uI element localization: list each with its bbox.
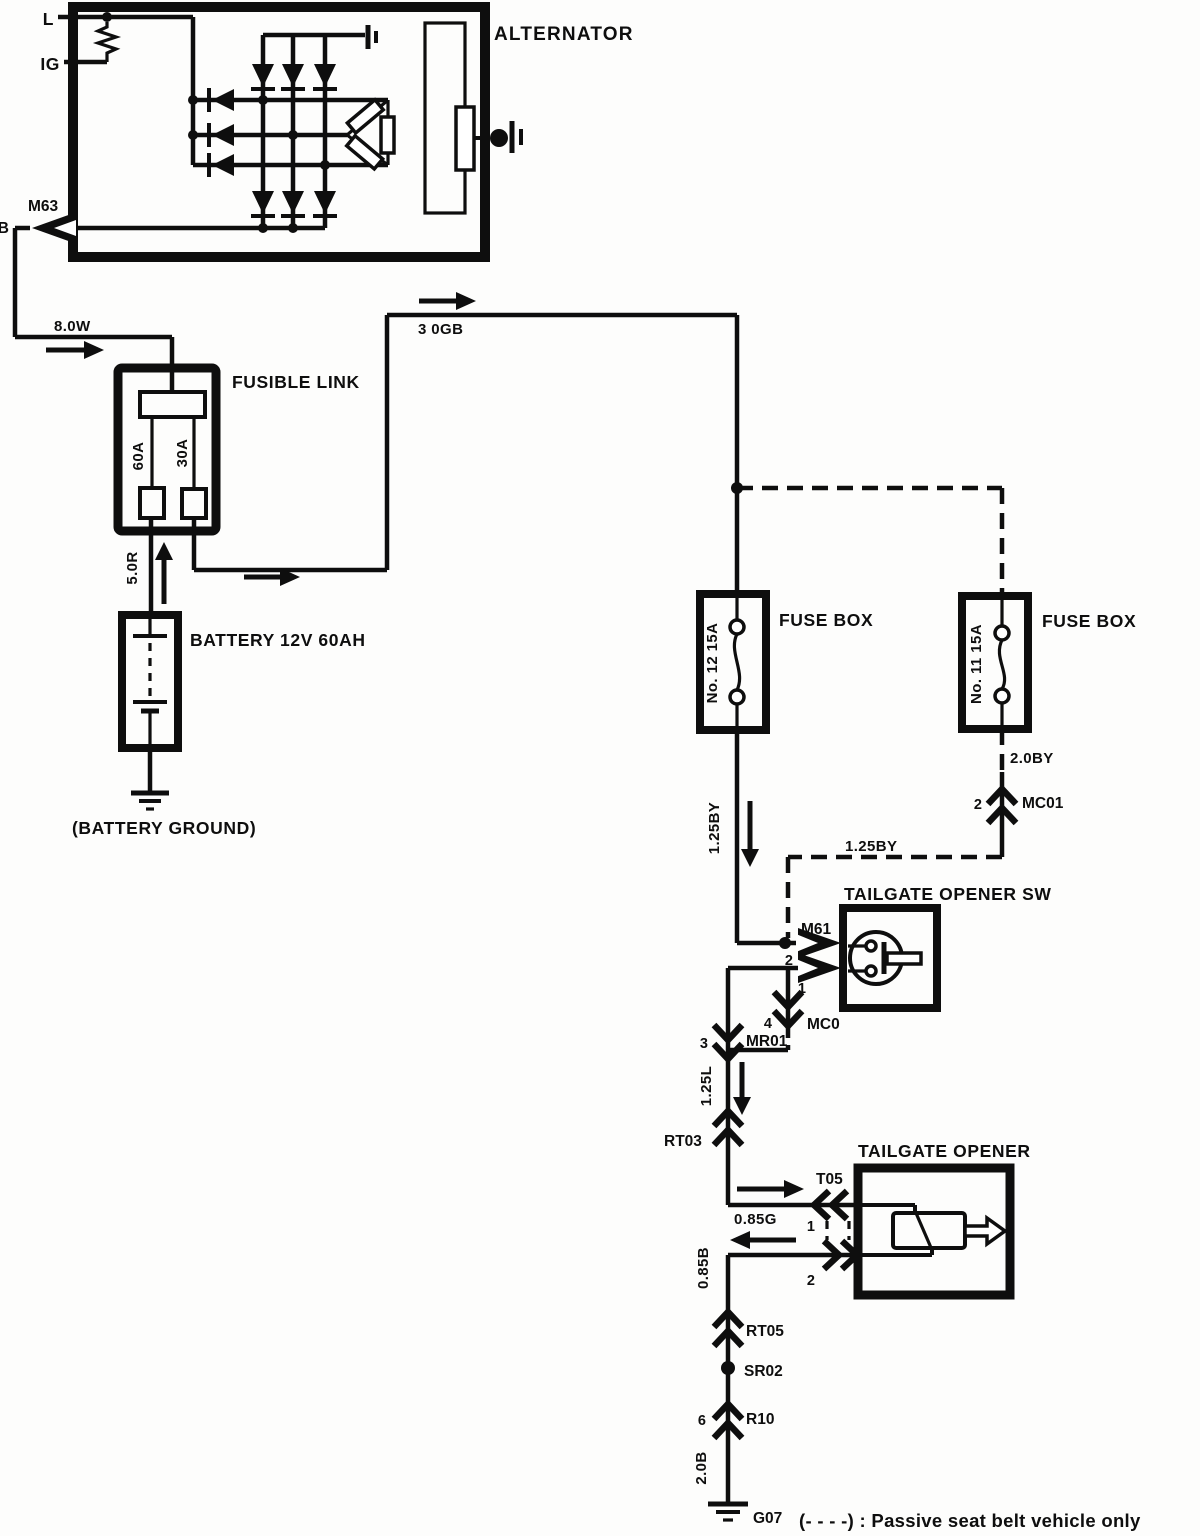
fuse-60a-label: 60A bbox=[130, 442, 147, 471]
alternator-label: ALTERNATOR bbox=[494, 24, 634, 45]
junction-dot bbox=[779, 937, 791, 949]
wire-1-25by-h-label: 1.25BY bbox=[845, 838, 897, 855]
t05-label: T05 bbox=[816, 1171, 843, 1188]
wiring-diagram-page: ALTERNATOR L IG M63 B 8.0W FUSIBLE LINK … bbox=[0, 0, 1200, 1536]
mc01-label: MC01 bbox=[1022, 795, 1064, 812]
mc01-pin-label: 2 bbox=[974, 797, 982, 813]
ground-icon bbox=[708, 1504, 748, 1520]
battery-label: BATTERY 12V 60AH bbox=[190, 630, 366, 650]
fuse-element-icon bbox=[995, 626, 1009, 640]
m63-label: M63 bbox=[28, 198, 59, 215]
fusible-link-label: FUSIBLE LINK bbox=[232, 372, 360, 392]
ground-icon bbox=[131, 793, 169, 809]
battery: BATTERY 12V 60AH (BATTERY GROUND) bbox=[72, 615, 366, 838]
field-coil-icon bbox=[425, 23, 521, 213]
tailgate-opener-sw: TAILGATE OPENER SW M61 2 1 bbox=[728, 884, 1052, 1008]
fuse-box-no11: FUSE BOX No. 11 15A bbox=[962, 596, 1136, 729]
r10-label: R10 bbox=[746, 1411, 774, 1428]
stator-winding-icon bbox=[347, 100, 394, 169]
mr01-pin-label: 3 bbox=[700, 1036, 708, 1052]
fuse12-output-wire: 1.25BY bbox=[706, 730, 798, 949]
fuse-element-icon bbox=[730, 620, 744, 634]
rt05-label: RT05 bbox=[746, 1323, 784, 1340]
wire-2-0b-label: 2.0B bbox=[693, 1451, 710, 1484]
mr01-label: MR01 bbox=[746, 1033, 788, 1050]
terminal-l-label: L bbox=[43, 9, 54, 29]
mc0-label: MC0 bbox=[807, 1016, 840, 1033]
terminal-ig-label: IG bbox=[40, 54, 60, 74]
r10-pin-label: 6 bbox=[698, 1413, 706, 1429]
wire-0-85g-label: 0.85G bbox=[734, 1211, 777, 1228]
fusible-link: FUSIBLE LINK 60A 30A 5.0R bbox=[118, 368, 387, 615]
wire-8-0w-label: 8.0W bbox=[54, 318, 91, 335]
tailgate-opener-sw-label: TAILGATE OPENER SW bbox=[844, 884, 1052, 904]
tailgate-opener: TAILGATE OPENER 0.85G T05 1 2 0.85B bbox=[695, 1141, 1031, 1502]
wire-5-0r-label: 5.0R bbox=[124, 551, 141, 584]
g07-label: G07 bbox=[753, 1510, 782, 1527]
fuse-box-no12-label: FUSE BOX bbox=[779, 610, 873, 630]
rt03-label: RT03 bbox=[664, 1133, 702, 1150]
t05-pin1-label: 1 bbox=[807, 1219, 815, 1235]
tailgate-opener-label: TAILGATE OPENER bbox=[858, 1141, 1031, 1161]
solenoid-actuator-icon bbox=[858, 1205, 1005, 1255]
wire-2-0by-label: 2.0BY bbox=[1010, 750, 1054, 767]
key-switch-icon bbox=[848, 932, 921, 984]
sr02-junction-dot bbox=[721, 1361, 735, 1375]
passive-seat-belt-note: (- - - -) : Passive seat belt vehicle on… bbox=[799, 1510, 1141, 1531]
alternator-box bbox=[73, 7, 485, 257]
wire-3-0gb-label: 3 0GB bbox=[418, 321, 463, 338]
wire-1-25l-label: 1.25L bbox=[698, 1066, 715, 1106]
alternator: ALTERNATOR L IG bbox=[40, 7, 633, 257]
t05-pin2-label: 2 bbox=[807, 1273, 815, 1289]
mr01-rt03-chain: 3 MR01 1.25L RT03 bbox=[664, 968, 788, 1205]
fuse-no11-rating-label: No. 11 15A bbox=[968, 624, 985, 704]
fuse-30a-label: 30A bbox=[174, 439, 191, 468]
fuse-box-no11-label: FUSE BOX bbox=[1042, 611, 1136, 631]
wiring-diagram-canvas: ALTERNATOR L IG M63 B 8.0W FUSIBLE LINK … bbox=[0, 0, 1200, 1536]
fuse-box-no12: FUSE BOX No. 12 15A bbox=[700, 594, 873, 730]
terminal-b-label: B bbox=[0, 220, 9, 237]
sr02-label: SR02 bbox=[744, 1363, 783, 1380]
wire-0-85b-label: 0.85B bbox=[695, 1247, 712, 1289]
m61-connector-icon bbox=[796, 928, 841, 983]
battery-ground-label: (BATTERY GROUND) bbox=[72, 818, 256, 838]
wire-1-25by-v-label: 1.25BY bbox=[706, 802, 723, 854]
fuse-no12-rating-label: No. 12 15A bbox=[704, 623, 721, 704]
ground-return-chain: RT05 SR02 6 R10 2.0B G07 bbox=[693, 1312, 784, 1527]
mc0-pin-label: 4 bbox=[764, 1016, 772, 1032]
main-feed-wire: 3 0GB bbox=[387, 292, 1002, 596]
